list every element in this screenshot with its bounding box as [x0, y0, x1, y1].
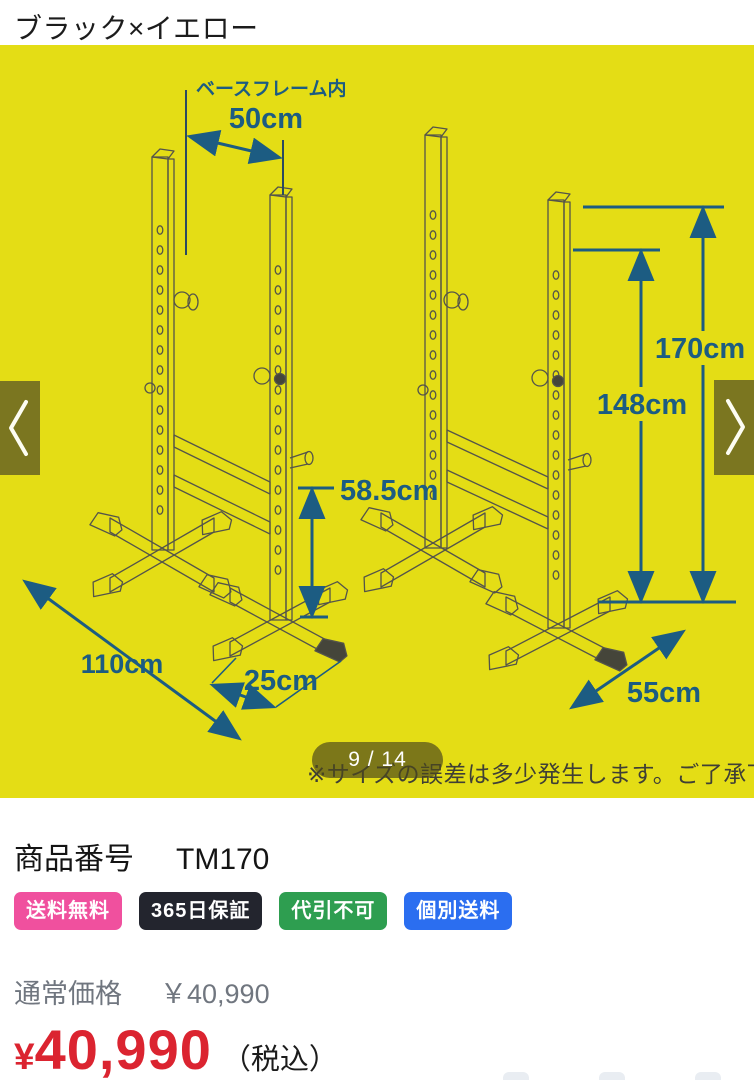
badge-free-shipping: 送料無料	[14, 892, 122, 930]
dimension-diagram-image: ベースフレーム内 50cm 170cm 148cm 58.5cm	[0, 45, 754, 798]
product-number-value: TM170	[176, 843, 269, 877]
sale-price-amount: 40,990	[35, 1017, 212, 1080]
label-base-frame-width: 50cm	[229, 103, 303, 135]
label-base-depth: 110cm	[81, 649, 164, 679]
variant-title: ブラック×イエロー	[0, 0, 754, 47]
label-safety-height: 58.5cm	[340, 475, 438, 507]
partial-thumbnail-button[interactable]	[503, 1072, 529, 1080]
chevron-right-icon	[714, 380, 754, 475]
label-base-width: 55cm	[627, 677, 701, 709]
badge-row: 送料無料 365日保証 代引不可 個別送料	[14, 892, 754, 930]
product-image-carousel[interactable]: ベースフレーム内 50cm 170cm 148cm 58.5cm	[0, 45, 754, 798]
regular-price-amount: ￥40,990	[160, 972, 270, 1011]
carousel-next-button[interactable]	[714, 380, 754, 475]
label-base-frame: ベースフレーム内	[196, 77, 346, 100]
product-info-section: 商品番号 TM170 送料無料 365日保証 代引不可 個別送料 通常価格 ￥4…	[0, 798, 754, 1080]
regular-price-label: 通常価格	[14, 972, 122, 1011]
regular-price-row: 通常価格 ￥40,990	[14, 972, 754, 1011]
label-rack-height: 148cm	[597, 389, 687, 421]
sale-price-currency: ¥	[14, 1036, 35, 1078]
label-total-height: 170cm	[655, 333, 745, 365]
partial-thumbnail-button[interactable]	[599, 1072, 625, 1080]
carousel-prev-button[interactable]	[0, 381, 40, 475]
partial-thumbnail-button[interactable]	[695, 1072, 721, 1080]
badge-365day-warranty: 365日保証	[139, 892, 262, 930]
product-number-label: 商品番号	[14, 834, 134, 878]
badge-no-cod: 代引不可	[279, 892, 387, 930]
label-foot-length: 25cm	[244, 665, 318, 697]
chevron-left-icon	[0, 381, 40, 475]
badge-individual-shipping: 個別送料	[404, 892, 512, 930]
product-page: ブラック×イエロー ベースフレーム内 50cm 17	[0, 0, 754, 1080]
sale-price-row: ¥ 40,990 （税込）	[14, 1017, 754, 1080]
tax-included-label: （税込）	[222, 1036, 338, 1078]
dimension-annotations: ベースフレーム内 50cm 170cm 148cm 58.5cm	[27, 77, 745, 737]
image-counter-badge: 9 / 14	[312, 742, 443, 778]
product-number-row: 商品番号 TM170	[14, 834, 754, 878]
squat-stand-line-art	[89, 127, 631, 673]
